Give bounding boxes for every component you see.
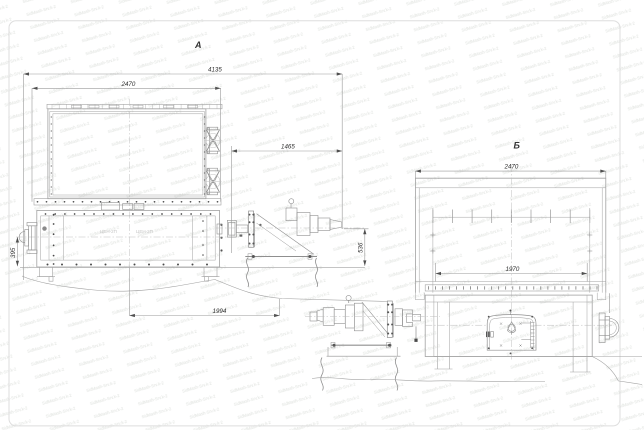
svg-text:ЦЕН-2П: ЦЕН-2П [136,229,153,234]
svg-text:1465: 1465 [281,144,295,151]
svg-text:395: 395 [10,247,17,258]
svg-text:А: А [194,40,202,50]
svg-text:2470: 2470 [504,164,519,171]
svg-text:536: 536 [357,242,364,253]
svg-text:ЦЕН-2П: ЦЕН-2П [100,229,117,234]
svg-text:2470: 2470 [121,81,136,88]
svg-text:1994: 1994 [213,308,227,315]
svg-text:1970: 1970 [506,266,520,273]
svg-text:Б: Б [514,140,521,150]
svg-text:4135: 4135 [208,67,222,74]
